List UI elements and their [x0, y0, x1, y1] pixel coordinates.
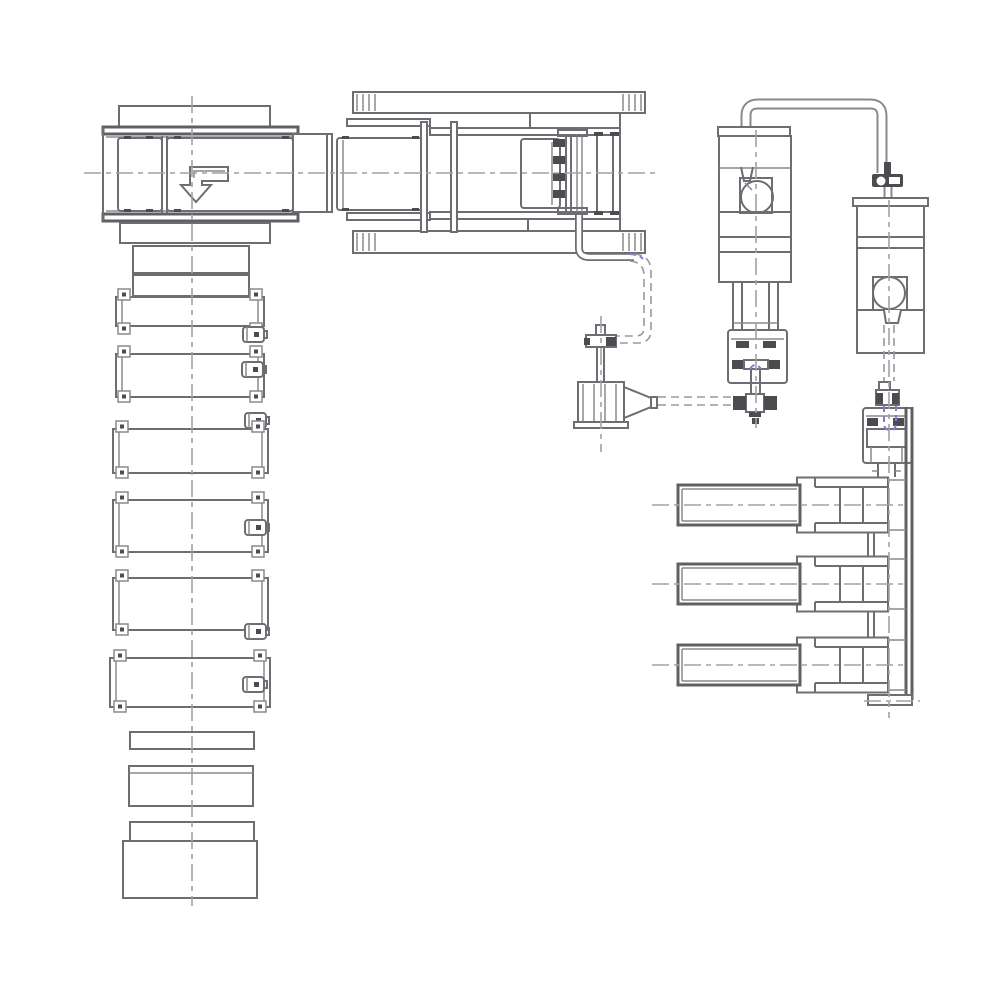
bar-motor-plug — [242, 362, 266, 377]
machinery-layout-drawing — [0, 0, 1000, 1000]
engineering-drawing-canvas — [0, 0, 1000, 1000]
clamp-bar-4 — [113, 492, 269, 557]
bar-motor-plug — [245, 624, 269, 639]
clamp-bar-6 — [110, 650, 270, 712]
pump-unit-a — [718, 127, 791, 424]
bar-motor-plug — [243, 677, 267, 692]
clamp-bar-5 — [113, 570, 269, 639]
bar-motor-plug — [245, 520, 269, 535]
bar-motor-plug — [243, 327, 267, 342]
clamp-bar-2 — [116, 346, 266, 402]
